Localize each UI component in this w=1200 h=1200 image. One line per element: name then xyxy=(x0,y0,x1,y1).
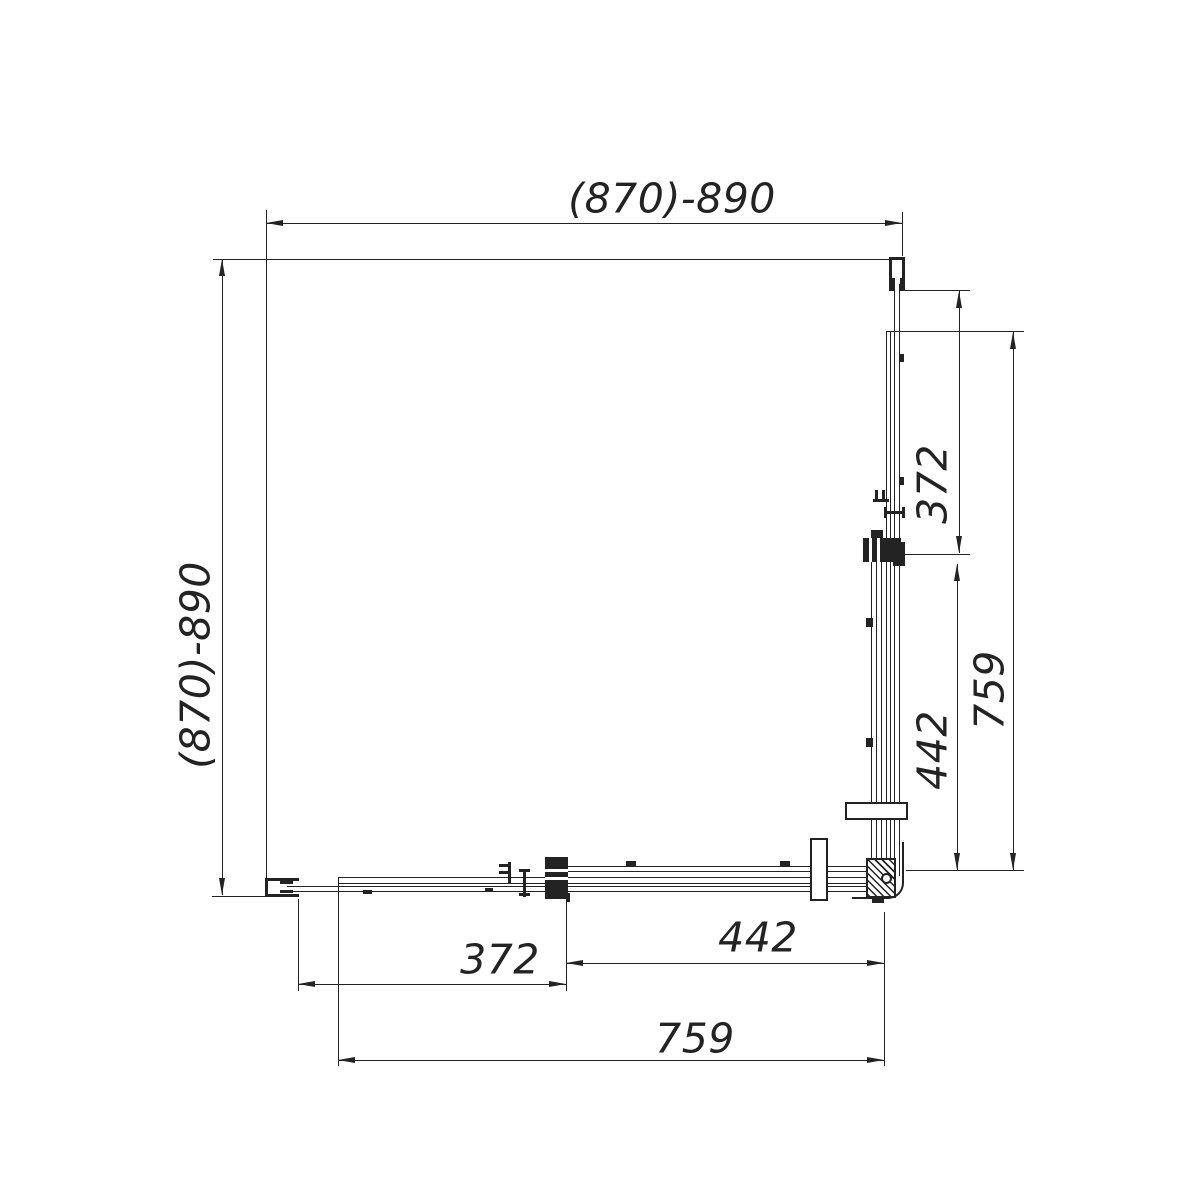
arrow-left-icon xyxy=(298,981,315,987)
wall-left-edge xyxy=(266,210,267,879)
arrow-up-icon xyxy=(219,259,225,276)
roller-block-stripe xyxy=(545,869,568,872)
dimension-text: 442 xyxy=(718,918,798,959)
dimension-text: 372 xyxy=(913,444,954,524)
extension-line xyxy=(298,899,299,991)
glass-clamp xyxy=(519,869,530,872)
glass-line xyxy=(338,877,882,878)
glass-line xyxy=(894,284,895,876)
glass-tab xyxy=(363,890,372,894)
arrow-down-icon xyxy=(1010,853,1016,870)
stopper-bracket xyxy=(875,490,878,499)
dimension-line xyxy=(266,223,902,224)
dimension-text-left: (870)-890 xyxy=(176,561,217,769)
extension-line xyxy=(212,896,272,897)
stopper-bracket xyxy=(873,499,889,502)
glass-line xyxy=(890,331,891,876)
wall-top-edge xyxy=(213,259,890,260)
roller-block-stripe xyxy=(545,877,568,880)
dimension-text: 759 xyxy=(970,650,1011,730)
arrow-up-icon xyxy=(956,291,962,308)
glass-clamp xyxy=(519,893,530,896)
dimension-text-top: (870)-890 xyxy=(568,179,776,220)
glass-tab xyxy=(899,354,904,362)
shower-enclosure-plan-drawing: (870)-890 (870)-890 372 442 759 xyxy=(0,0,1200,1200)
roller-block-stripe xyxy=(877,538,880,562)
arrow-left-icon xyxy=(566,960,583,966)
arrow-down-icon xyxy=(954,853,960,870)
dimension-text: 442 xyxy=(913,710,954,790)
glass-tab xyxy=(626,861,636,866)
dimension-text: 372 xyxy=(460,940,540,981)
roller-hook xyxy=(566,895,570,902)
glass-tab xyxy=(866,618,873,627)
arrow-left-icon xyxy=(266,220,283,226)
glass-clamp xyxy=(902,507,905,518)
stopper-bracket xyxy=(499,864,508,867)
corner-screw-hole xyxy=(881,873,892,884)
roller-hook xyxy=(893,562,905,566)
extension-line xyxy=(566,902,567,991)
glass-line xyxy=(871,562,872,874)
arrow-down-icon xyxy=(956,536,962,553)
stopper-bracket xyxy=(508,862,511,883)
extension-line xyxy=(338,878,339,1066)
roller-block-stripe xyxy=(869,538,872,562)
glass-line xyxy=(899,284,900,876)
arrow-up-icon xyxy=(1010,332,1016,349)
glass-line xyxy=(568,866,880,867)
arrow-right-icon xyxy=(885,220,902,226)
glass-tab xyxy=(866,738,873,747)
glass-line xyxy=(876,562,877,874)
arrow-down-icon xyxy=(219,878,225,895)
glass-line xyxy=(287,886,882,887)
glass-tab xyxy=(780,861,790,866)
glass-tab xyxy=(485,888,493,892)
arrow-right-icon xyxy=(867,1057,884,1063)
arrow-left-icon xyxy=(338,1057,355,1063)
door-handle-right xyxy=(845,802,908,820)
dimension-text: 759 xyxy=(655,1019,735,1060)
extension-line xyxy=(906,870,1024,871)
dimension-line xyxy=(222,259,223,895)
extension-line xyxy=(886,331,1024,332)
dimension-line xyxy=(1013,332,1014,870)
dimension-line xyxy=(338,1060,884,1061)
extension-line xyxy=(904,554,970,555)
glass-line xyxy=(886,331,887,876)
glass-tab xyxy=(899,477,904,485)
glass-clamp xyxy=(884,507,887,518)
stopper-bracket xyxy=(499,871,508,874)
extension-line xyxy=(902,212,903,256)
arrow-up-icon xyxy=(954,564,960,581)
glass-line xyxy=(287,891,882,892)
glass-line xyxy=(568,871,880,872)
dimension-line xyxy=(957,564,958,870)
wall-profile-left-tab xyxy=(280,881,293,884)
arrow-right-icon xyxy=(549,981,566,987)
glass-line xyxy=(881,562,882,874)
glass-line xyxy=(338,883,882,884)
corner-foot xyxy=(872,897,884,903)
extension-line xyxy=(884,912,885,1066)
door-handle-bottom xyxy=(810,838,828,901)
dimension-line xyxy=(566,963,884,964)
stopper-bracket xyxy=(882,490,885,499)
roller-cap xyxy=(871,530,883,538)
arrow-right-icon xyxy=(867,960,884,966)
